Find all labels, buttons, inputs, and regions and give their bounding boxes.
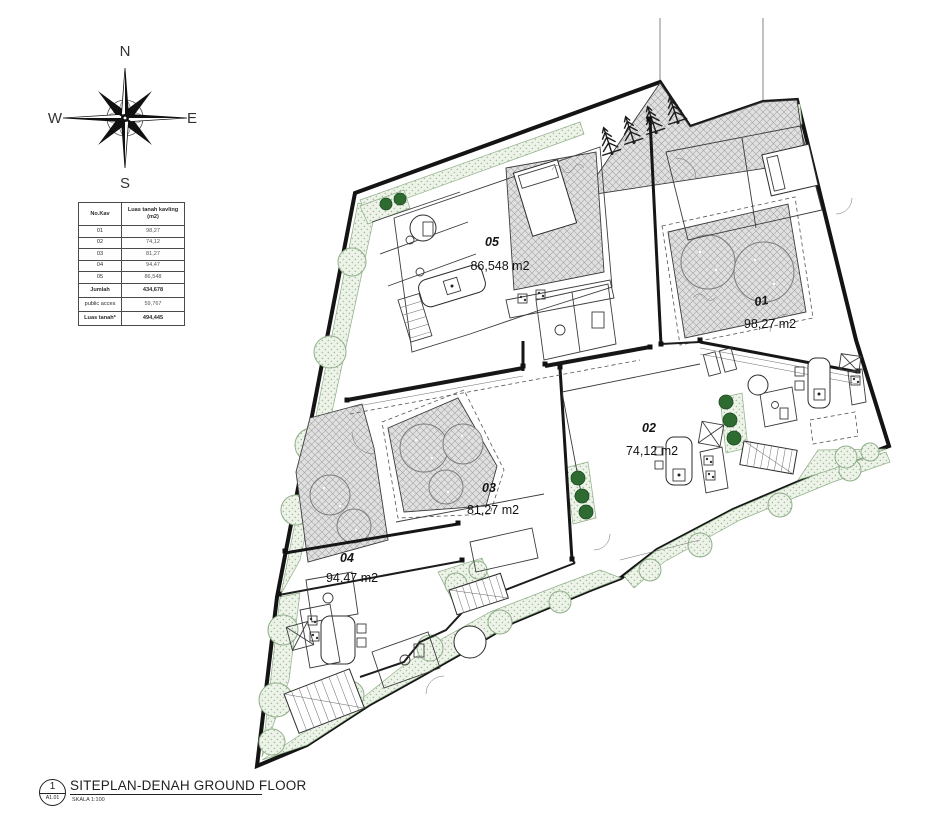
unit-03-number: 03 bbox=[482, 481, 496, 495]
unit-03-area: 81,27 m2 bbox=[467, 503, 519, 517]
unit-05-area: 86,548 m2 bbox=[470, 259, 529, 273]
siteplan-drawing: .bnd{fill:#ffffff;stroke:#141414;stroke-… bbox=[0, 0, 943, 840]
unit-02-number: 02 bbox=[642, 421, 656, 435]
siteplan-sheet: { "compass": { "n": "N", "e": "E", "s": … bbox=[0, 0, 943, 840]
drawing-number-bubble: 1 A1.01 bbox=[39, 779, 66, 806]
unit-04-area: 94,47 m2 bbox=[326, 571, 378, 585]
unit-04-number: 04 bbox=[340, 551, 354, 565]
unit-01-number: 01 bbox=[753, 293, 769, 309]
unit-05-number: 05 bbox=[485, 235, 500, 249]
unit-01-area: 98,27 m2 bbox=[744, 317, 796, 331]
drawing-scale: SKALA 1:100 bbox=[72, 797, 105, 803]
drawing-title: SITEPLAN-DENAH GROUND FLOOR bbox=[70, 778, 262, 795]
unit-02-area: 74,12 m2 bbox=[626, 444, 678, 458]
sheet-number: A1.01 bbox=[40, 794, 65, 803]
property-survey-lines bbox=[660, 18, 763, 102]
drawing-number: 1 bbox=[40, 780, 65, 794]
